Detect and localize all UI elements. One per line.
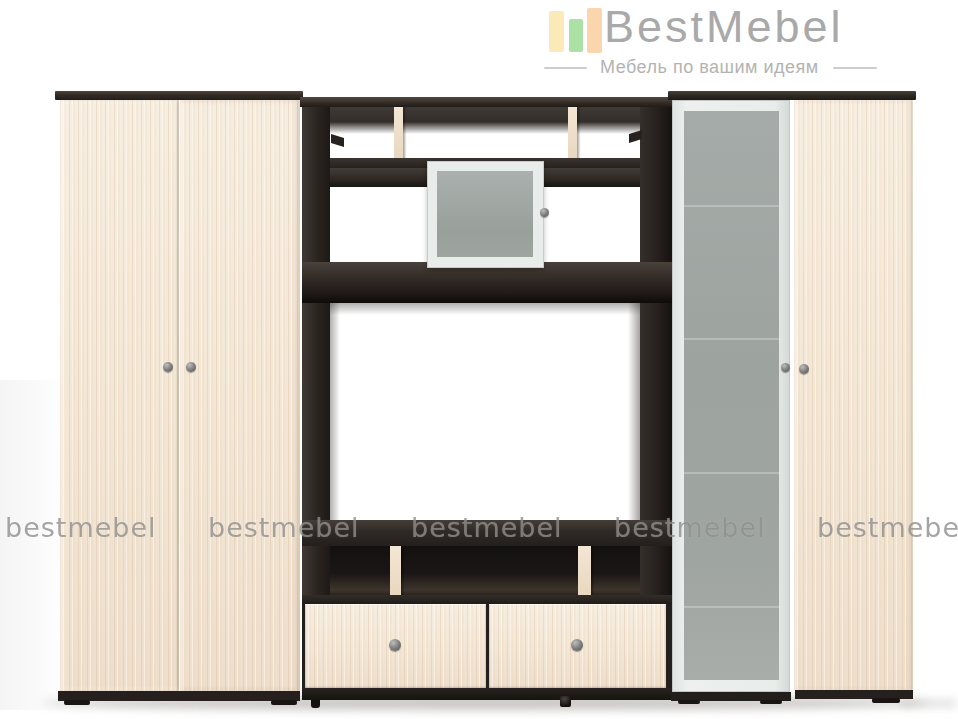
- watermark-text: bestmebel: [208, 511, 360, 545]
- tv-niche-shadow: [628, 303, 640, 520]
- furniture-foot: [678, 700, 700, 704]
- display-cabinet-shelf-line: [684, 472, 779, 474]
- display-cabinet-shelf-line: [684, 205, 779, 207]
- left-wardrobe-top-panel: [55, 91, 303, 100]
- open-shelf-divider: [390, 546, 401, 596]
- glass-cabinet-knob: [540, 208, 549, 217]
- product-page: BestMebel Мебель по вашим идеям: [0, 0, 958, 719]
- tv-unit-open-shelf-row: [330, 546, 640, 596]
- tv-unit-top-board: [300, 97, 672, 107]
- top-shelf-divider: [394, 107, 403, 160]
- floor-shadow-right: [900, 699, 956, 708]
- tv-niche-shadow: [330, 303, 640, 315]
- brand-title: BestMebel: [604, 1, 844, 53]
- door-knob: [163, 362, 173, 372]
- display-cabinet-shelf-line: [684, 338, 779, 340]
- furniture-foot: [311, 699, 320, 708]
- top-shelf-divider: [568, 107, 577, 160]
- brand-tagline: Мебель по вашим идеям: [600, 57, 819, 78]
- furniture-foot: [271, 700, 297, 705]
- furniture-foot: [872, 698, 900, 703]
- logo-bars-icon: [549, 11, 564, 52]
- display-cabinet-shelf-line: [684, 606, 779, 608]
- display-cabinet-glass-door: [684, 111, 779, 680]
- tv-unit-lower-shelf: [302, 595, 672, 604]
- drawer-knob: [389, 639, 401, 651]
- furniture-foot: [760, 700, 782, 704]
- open-shelf-divider: [578, 546, 591, 596]
- furniture-foot: [64, 700, 90, 705]
- watermark-text: bestmebel: [614, 511, 766, 545]
- tv-unit-upper-shelf-face-right: [544, 168, 640, 187]
- shelf-bracket: [331, 134, 344, 147]
- watermark-text: bestmebel: [5, 511, 157, 545]
- door-knob: [799, 364, 809, 374]
- tv-unit-base: [302, 688, 672, 700]
- left-wardrobe-plinth: [58, 691, 300, 701]
- tv-niche-shadow: [330, 303, 340, 520]
- logo-bars-icon: [569, 19, 583, 52]
- tv-unit-upper-shelf-face-left: [330, 168, 428, 187]
- right-wardrobe-top-panel: [668, 91, 916, 100]
- logo-bars-icon: [587, 8, 602, 53]
- furniture-foot: [560, 696, 571, 707]
- hanging-glass-cabinet-glass: [437, 171, 533, 257]
- right-wardrobe-door: [794, 100, 913, 690]
- left-wardrobe-door-right: [180, 100, 300, 691]
- drawer-knob: [571, 639, 583, 651]
- watermark-text: bestmebel: [817, 511, 958, 545]
- watermark-text: bestmebel: [411, 511, 563, 545]
- display-cabinet-knob: [781, 363, 790, 372]
- tagline-dash-left: [544, 67, 587, 69]
- tv-unit-top-shelf-interior: [330, 107, 640, 134]
- door-knob: [186, 362, 196, 372]
- tv-niche-top-board: [302, 262, 672, 303]
- tagline-dash-right: [833, 67, 877, 69]
- left-wardrobe-door-left: [60, 100, 179, 691]
